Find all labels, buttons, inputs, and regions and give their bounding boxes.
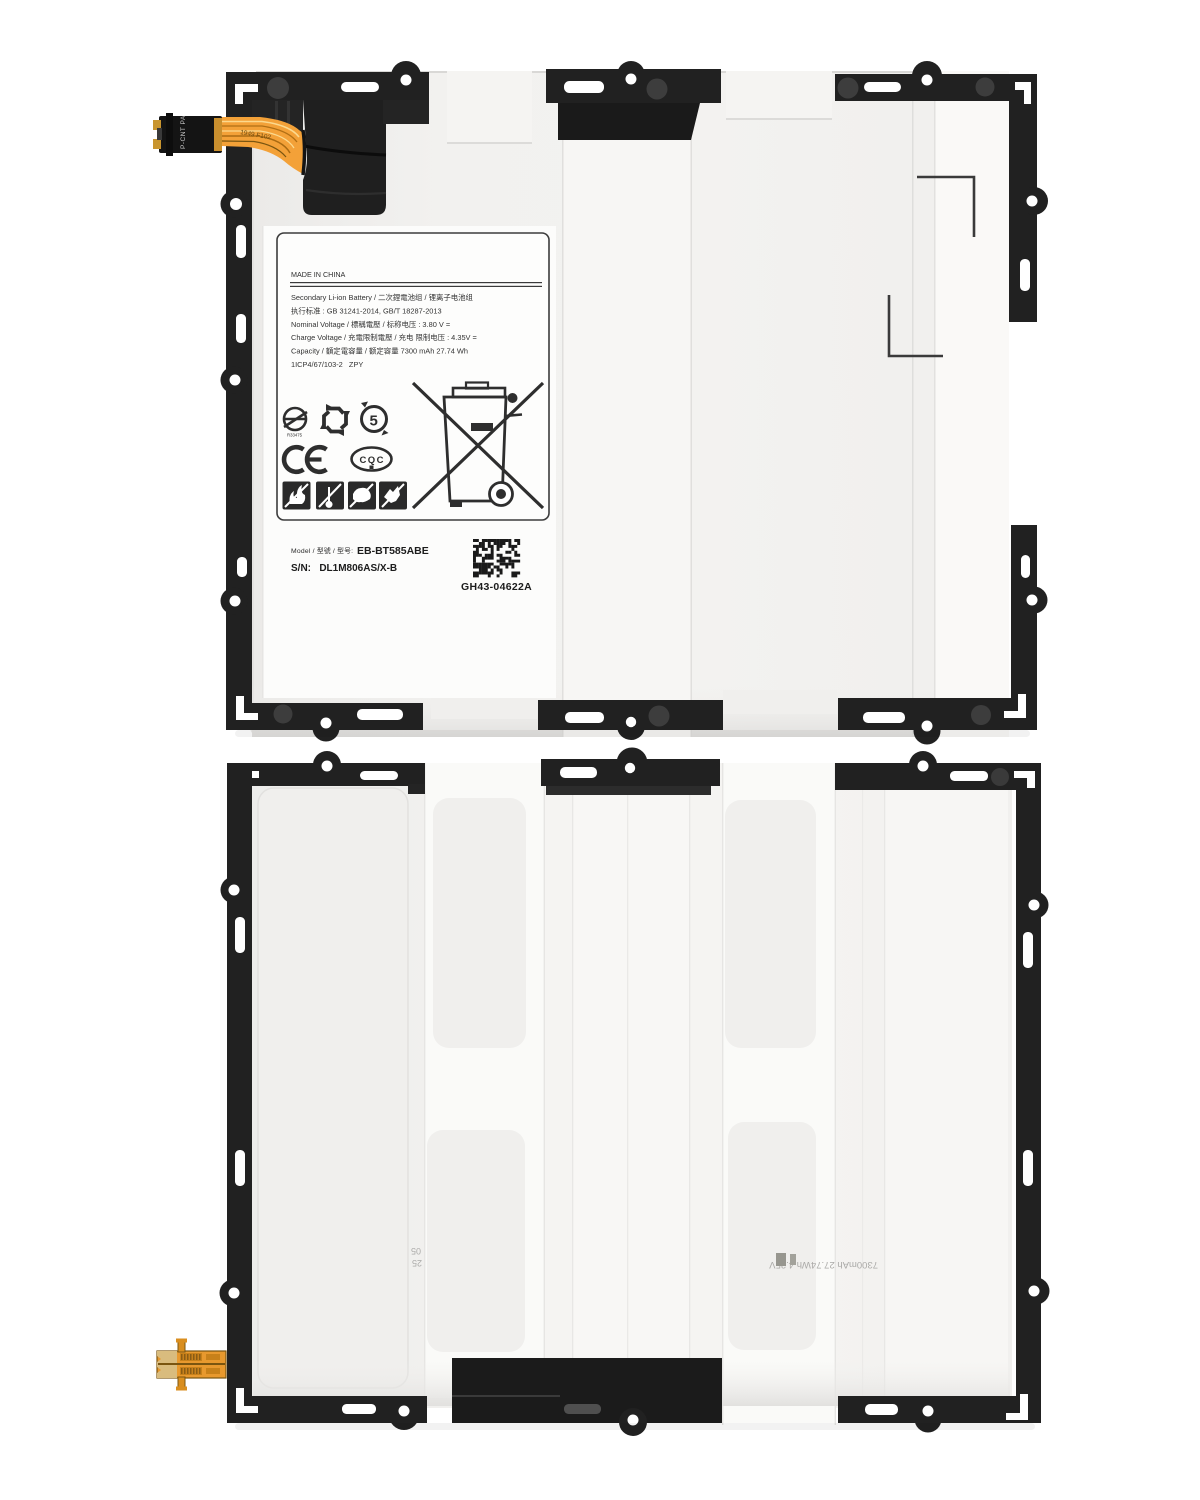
svg-text:CQC: CQC	[360, 455, 384, 466]
svg-text:Capacity / 額定電容量 / 额定容量 7300: Capacity / 額定電容量 / 额定容量 7300 mAh 27.74 W…	[291, 347, 468, 356]
svg-text:MADE IN CHINA: MADE IN CHINA	[291, 270, 346, 279]
svg-text:1ICP4/67/103-2 ZPY: 1ICP4/67/103-2 ZPY	[291, 360, 363, 369]
svg-text:GH43-04622A: GH43-04622A	[461, 581, 532, 593]
svg-text:EB-BT585ABE: EB-BT585ABE	[357, 545, 429, 557]
svg-text:Nominal Voltage / 標稱電壓 / 标称电压: Nominal Voltage / 標稱電壓 / 标称电压 : 3.80 V =	[291, 320, 450, 329]
svg-text:5: 5	[370, 413, 378, 430]
svg-text:Charge Voltage / 充電限制電壓 / 充电 限: Charge Voltage / 充電限制電壓 / 充电 限制电压 : 4.35…	[291, 333, 477, 342]
svg-text:P-CNT PA: P-CNT PA	[180, 115, 187, 149]
svg-text:R33475: R33475	[287, 433, 303, 438]
svg-text:05: 05	[411, 1246, 421, 1256]
svg-text:25: 25	[412, 1258, 422, 1268]
svg-text:S/N: DL1M806AS/X-B: S/N: DL1M806AS/X-B	[291, 563, 397, 574]
svg-text:Model / 型號 / 型号:: Model / 型號 / 型号:	[291, 546, 353, 555]
svg-text:Secondary Li-ion Battery / 二次鋰: Secondary Li-ion Battery / 二次鋰電池组 / 锂离子电…	[291, 293, 474, 302]
svg-text:执行标准 : GB 31241-2014, GB/T 182: 执行标准 : GB 31241-2014, GB/T 18287-2013	[291, 306, 442, 315]
